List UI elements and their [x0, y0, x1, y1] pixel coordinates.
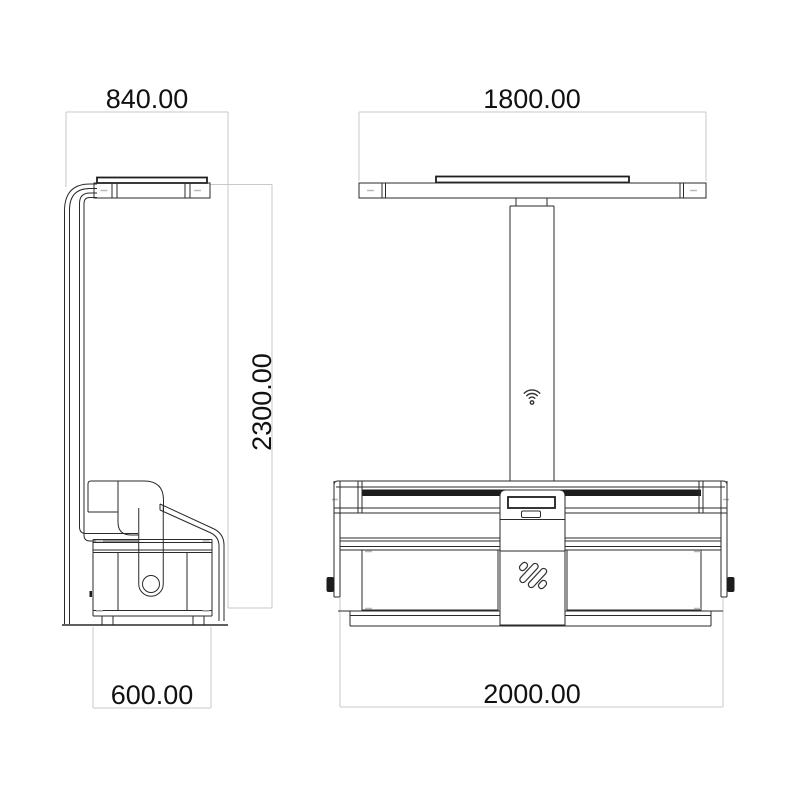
side-view: 840.00 2300.00 600.00: [62, 84, 277, 710]
tank-foot: [102, 616, 113, 625]
side-slope-cover: [160, 504, 224, 621]
front-column: [510, 198, 554, 481]
dimension-side-bottom-depth: 600.00: [93, 627, 211, 710]
arm-pivot-hole: [143, 576, 160, 593]
tank-foot: [193, 616, 204, 625]
dimension-label: 2000.00: [483, 679, 581, 709]
console-panel: [500, 490, 565, 625]
front-view: 1800.00 2000.00: [327, 84, 735, 709]
side-pump-arm: [88, 481, 164, 596]
side-tank: [90, 540, 213, 626]
dimension-label: 600.00: [111, 680, 194, 710]
post-foot: [727, 577, 735, 592]
drawing-svg: 840.00 2300.00 600.00: [0, 0, 800, 800]
side-frame-tube: [62, 184, 228, 625]
light-panel: [436, 177, 629, 183]
post-foot: [327, 577, 335, 592]
front-panel: [362, 550, 498, 610]
dimension-label: 2300.00: [247, 353, 277, 451]
dimension-label: 840.00: [106, 84, 189, 114]
light-panel: [97, 178, 207, 184]
side-canopy: [94, 178, 210, 199]
front-canopy: [359, 177, 706, 199]
wifi-icon: [524, 390, 540, 404]
technical-drawing-canvas: 840.00 2300.00 600.00: [0, 0, 800, 800]
dimension-side-height: 2300.00: [210, 185, 277, 609]
dimension-front-top-width: 1800.00: [359, 84, 706, 181]
front-panel: [567, 550, 701, 610]
dimension-label: 1800.00: [483, 84, 581, 114]
